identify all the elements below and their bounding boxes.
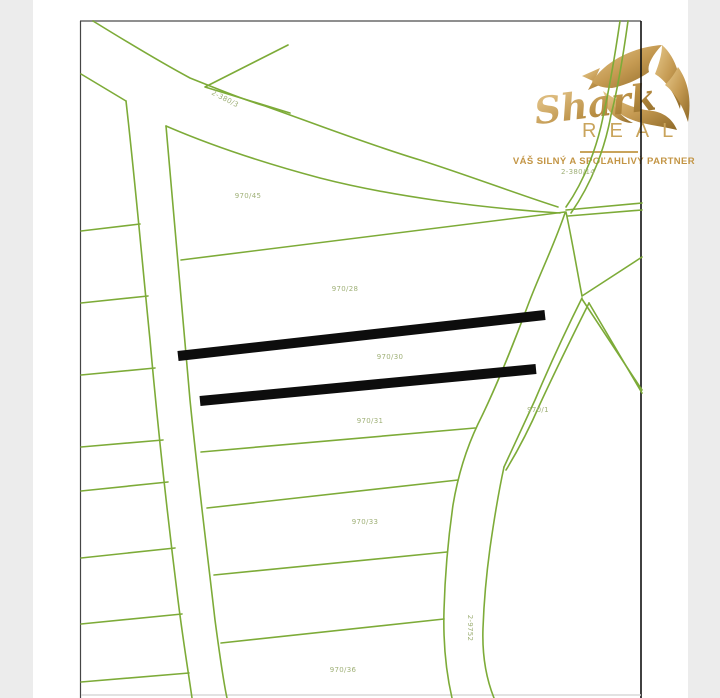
logo-wordmark: REAL	[582, 120, 692, 143]
parcel-label: 970/45	[235, 192, 261, 200]
parcel-label: 2-9752	[466, 615, 474, 642]
logo-divider	[580, 151, 638, 153]
parcel-label: 970/31	[357, 417, 383, 425]
parcel-label: 970/36	[330, 666, 356, 674]
highlight-bar-top	[178, 315, 545, 356]
logo-tagline: VÁŠ SILNÝ A SPOĽAHLIVÝ PARTNER	[508, 156, 700, 167]
highlight-bar-bottom	[200, 369, 536, 401]
parcel-label: 2-380/3	[210, 89, 240, 109]
parcel-label: 970/30	[377, 353, 403, 361]
parcel-label: 970/28	[332, 285, 358, 293]
parcel-boundaries	[81, 224, 475, 682]
left-margin-strip	[0, 0, 33, 698]
cadastral-map-screenshot: Shark REAL VÁŠ SILNÝ A SPOĽAHLIVÝ PARTNE…	[0, 0, 720, 698]
parcel-label: 970/33	[352, 518, 378, 526]
sharkreal-logo: Shark REAL VÁŠ SILNÝ A SPOĽAHLIVÝ PARTNE…	[500, 34, 700, 176]
highlight-bars	[178, 315, 545, 401]
parcel-label: 970/1	[527, 406, 549, 414]
